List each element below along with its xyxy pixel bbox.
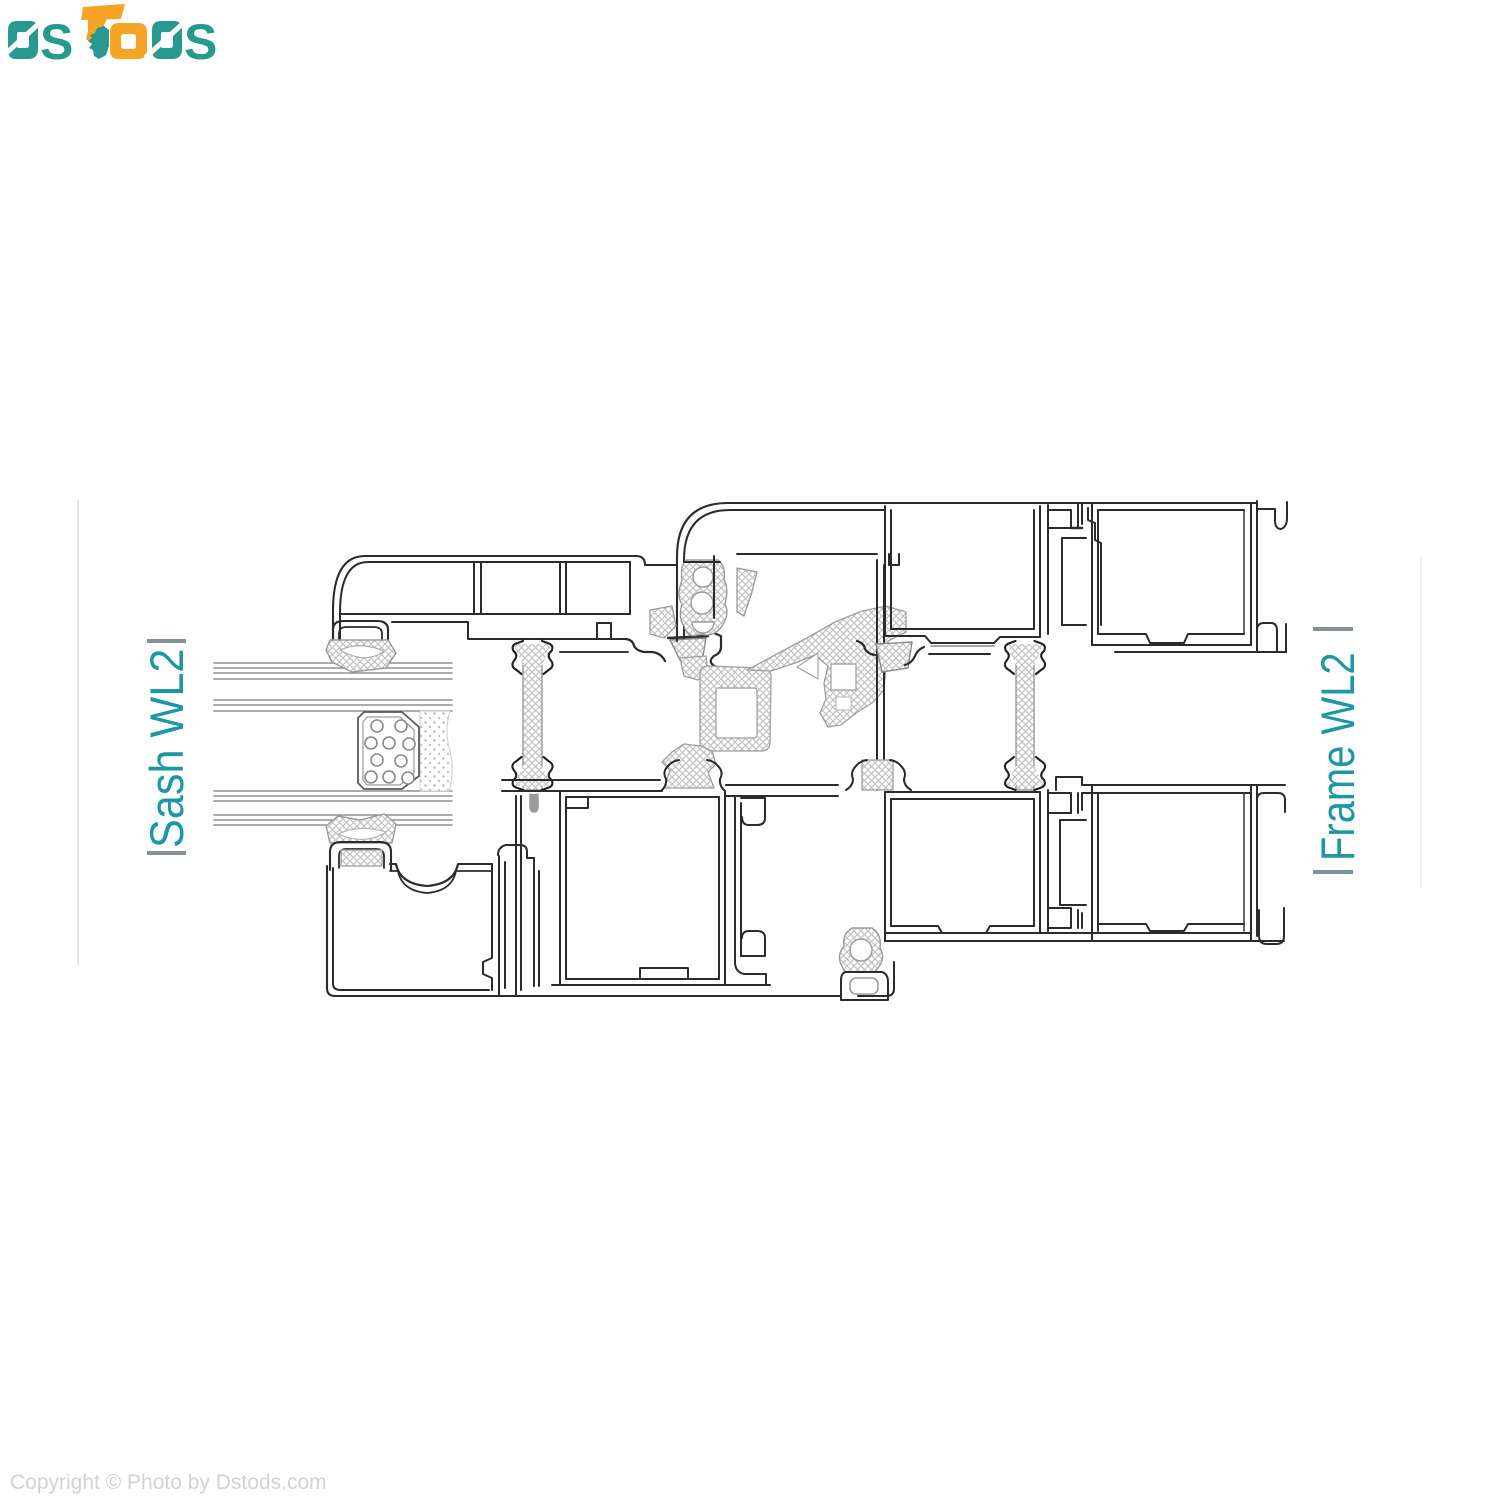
svg-text:S: S bbox=[184, 14, 217, 70]
svg-text:Frame WL2: Frame WL2 bbox=[1313, 652, 1365, 861]
svg-text:S: S bbox=[40, 14, 73, 70]
svg-text:Sash WL2: Sash WL2 bbox=[140, 649, 193, 848]
svg-text:Copyright © Photo by Dstods.co: Copyright © Photo by Dstods.com bbox=[10, 1471, 327, 1494]
